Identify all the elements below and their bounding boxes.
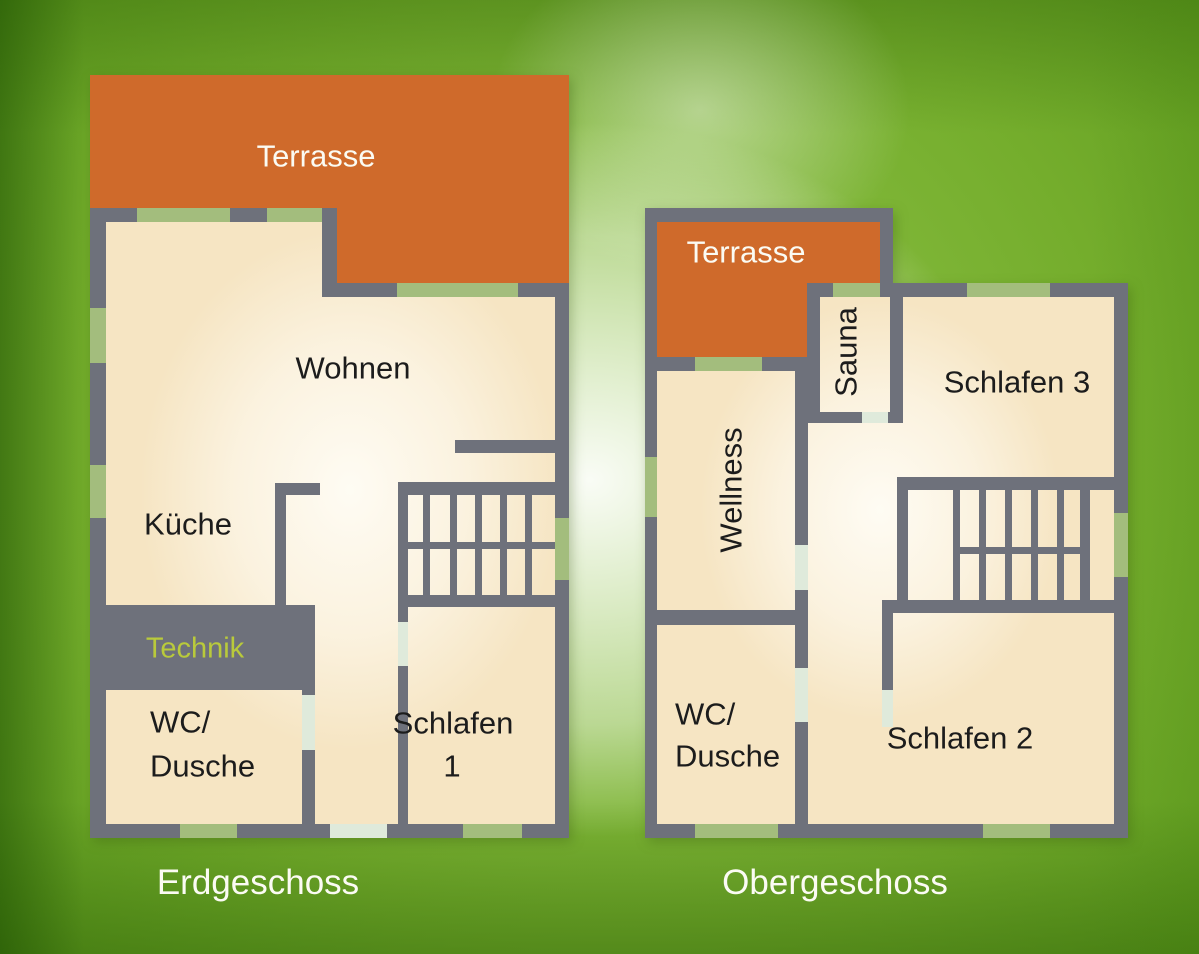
wall bbox=[882, 600, 1128, 613]
wall bbox=[897, 477, 908, 613]
floor-title-obergeschoss: Obergeschoss bbox=[722, 863, 948, 903]
door-marker bbox=[795, 668, 808, 722]
wall bbox=[890, 283, 903, 423]
window-marker bbox=[1114, 513, 1128, 577]
terrace-label-og: Terrasse bbox=[687, 237, 806, 268]
room-label-wc-og-line2: Dusche bbox=[675, 741, 780, 772]
wall bbox=[645, 208, 893, 222]
room-label-schlafen3: Schlafen 3 bbox=[944, 367, 1091, 398]
background: { "colors": { "background_green": "#79b2… bbox=[0, 0, 1199, 954]
wall bbox=[657, 610, 795, 625]
stair-tread bbox=[1057, 490, 1064, 600]
stair-tread bbox=[1031, 490, 1038, 600]
wall bbox=[807, 297, 820, 423]
floor-title-erdgeschoss: Erdgeschoss bbox=[157, 863, 359, 903]
stair-divider bbox=[953, 547, 1090, 554]
room-label-wc-og-line1: WC/ bbox=[675, 699, 735, 730]
wall bbox=[880, 208, 893, 285]
door-marker bbox=[862, 412, 888, 423]
door-marker bbox=[795, 545, 808, 590]
room-label-wellness: Wellness bbox=[716, 427, 747, 552]
wall bbox=[882, 600, 893, 690]
window-marker bbox=[645, 457, 657, 517]
stair-tread bbox=[1005, 490, 1012, 600]
stair-wall bbox=[1080, 490, 1090, 600]
wall bbox=[645, 208, 657, 838]
stair-tread bbox=[979, 490, 986, 600]
room-label-schlafen2: Schlafen 2 bbox=[887, 723, 1034, 754]
window-marker bbox=[983, 824, 1050, 838]
stair-tread bbox=[953, 490, 960, 600]
room-label-sauna: Sauna bbox=[831, 307, 862, 397]
floor-plan-obergeschoss: Terrasse Sauna Schlafen 3 Wellness WC/ D… bbox=[0, 0, 1199, 954]
wall bbox=[897, 477, 1128, 490]
window-marker bbox=[833, 283, 880, 297]
window-marker bbox=[695, 824, 778, 838]
window-marker bbox=[967, 283, 1050, 297]
window-marker bbox=[695, 357, 762, 371]
wall bbox=[807, 412, 903, 423]
